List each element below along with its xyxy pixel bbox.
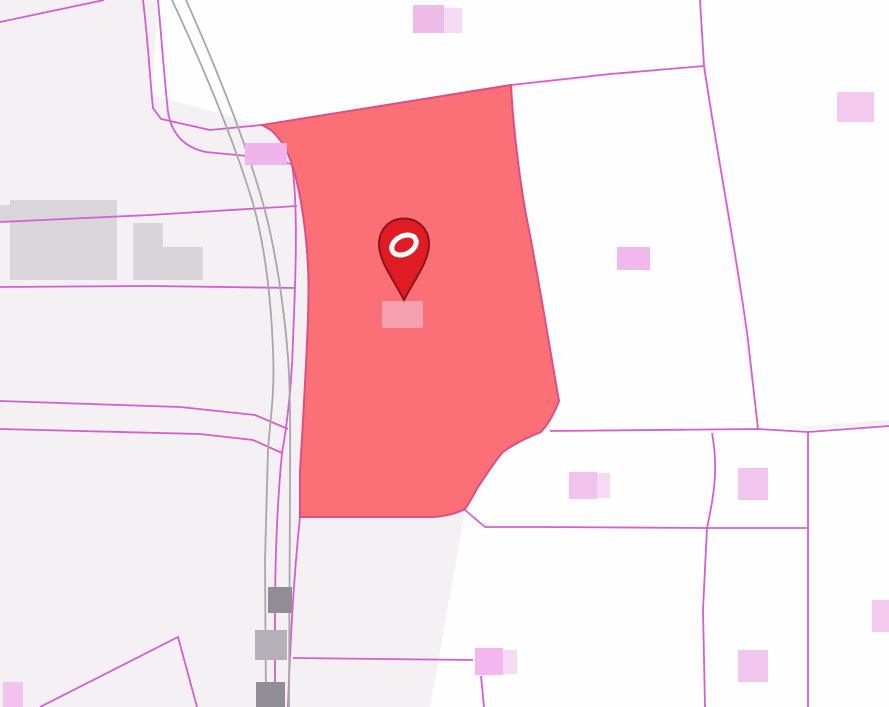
building-industrial-strip — [0, 205, 10, 222]
building-right-edge — [872, 600, 889, 632]
map-viewport[interactable] — [0, 0, 889, 707]
building-northwest-of-parcel — [245, 143, 287, 165]
building-southwest — [3, 682, 23, 707]
building-industrial-mid — [133, 223, 163, 280]
building-southeast-1 — [569, 472, 597, 499]
building-east — [617, 247, 650, 270]
building-roadside-lower — [256, 682, 285, 707]
building-roadside-mid — [255, 630, 287, 660]
building-roadside-upper — [268, 587, 292, 613]
building-south-annex — [503, 650, 517, 674]
building-north — [413, 5, 444, 33]
building-southeast-1-annex — [597, 473, 610, 498]
building-southeast-3 — [738, 650, 768, 682]
building-northeast — [837, 92, 874, 122]
building-industrial-annex — [163, 247, 203, 280]
building-north-annex — [444, 8, 462, 33]
map-canvas — [0, 0, 889, 707]
building-south — [475, 648, 503, 675]
building-southeast-2 — [738, 468, 768, 500]
building-industrial-large — [10, 200, 117, 280]
building-in-selected-parcel — [382, 301, 423, 328]
